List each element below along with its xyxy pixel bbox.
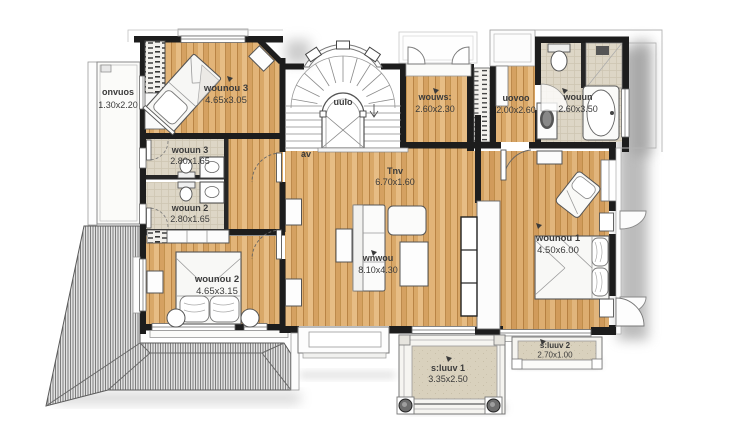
svg-text:4.65x3.05: 4.65x3.05 <box>205 95 247 106</box>
svg-text:8.10x4.30: 8.10x4.30 <box>358 265 398 275</box>
svg-text:uovoo: uovoo <box>503 93 530 103</box>
svg-text:wouun 3: wouun 3 <box>171 145 209 155</box>
svg-text:av: av <box>301 149 311 159</box>
svg-text:wounou 2: wounou 2 <box>194 274 239 285</box>
svg-text:3.35x2.50: 3.35x2.50 <box>428 374 468 384</box>
svg-text:4.50x6.00: 4.50x6.00 <box>537 245 579 256</box>
svg-text:wouws:: wouws: <box>418 92 452 102</box>
svg-text:wouun: wouun <box>563 92 593 102</box>
svg-text:s:luuv 1: s:luuv 1 <box>431 363 465 373</box>
svg-text:4.65x3.15: 4.65x3.15 <box>196 286 238 297</box>
svg-text:wounou 3: wounou 3 <box>203 83 248 94</box>
svg-text:2.00x2.60: 2.00x2.60 <box>496 105 536 115</box>
svg-text:2.70x1.00: 2.70x1.00 <box>537 351 573 360</box>
svg-text:2.80x1.65: 2.80x1.65 <box>170 214 210 224</box>
svg-text:uulo: uulo <box>334 97 353 107</box>
svg-text:2.60x3.50: 2.60x3.50 <box>558 104 598 114</box>
svg-text:2.60x2.30: 2.60x2.30 <box>415 104 455 114</box>
svg-text:wnwou: wnwou <box>362 253 394 263</box>
svg-text:wouun 2: wouun 2 <box>171 203 209 213</box>
svg-text:Tnv: Tnv <box>387 166 403 176</box>
svg-text:1.30x2.20: 1.30x2.20 <box>98 100 138 110</box>
svg-text:onvuos: onvuos <box>102 87 134 97</box>
svg-text:wounou 1: wounou 1 <box>535 233 581 244</box>
svg-text:6.70x1.60: 6.70x1.60 <box>375 177 415 187</box>
svg-text:2.80x1.65: 2.80x1.65 <box>170 156 210 166</box>
